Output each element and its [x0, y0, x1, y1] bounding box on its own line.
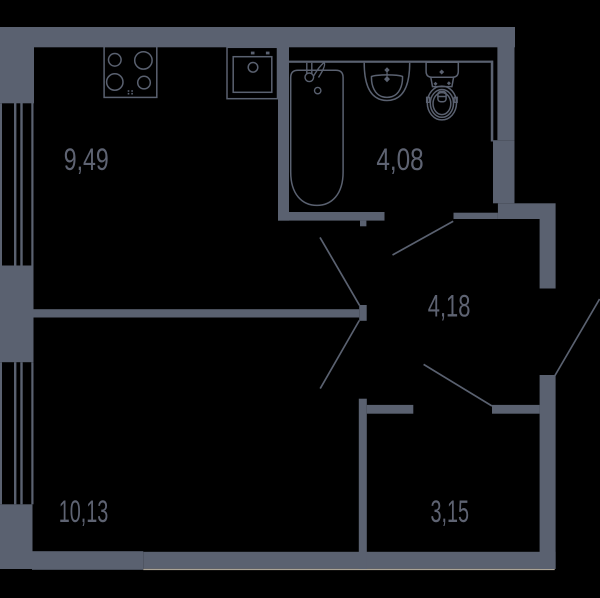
svg-text:4,18: 4,18: [428, 288, 471, 323]
svg-text:9,49: 9,49: [64, 142, 109, 177]
svg-text:3,15: 3,15: [431, 493, 469, 529]
svg-text:4,08: 4,08: [376, 142, 423, 177]
svg-text:10,13: 10,13: [59, 493, 109, 529]
